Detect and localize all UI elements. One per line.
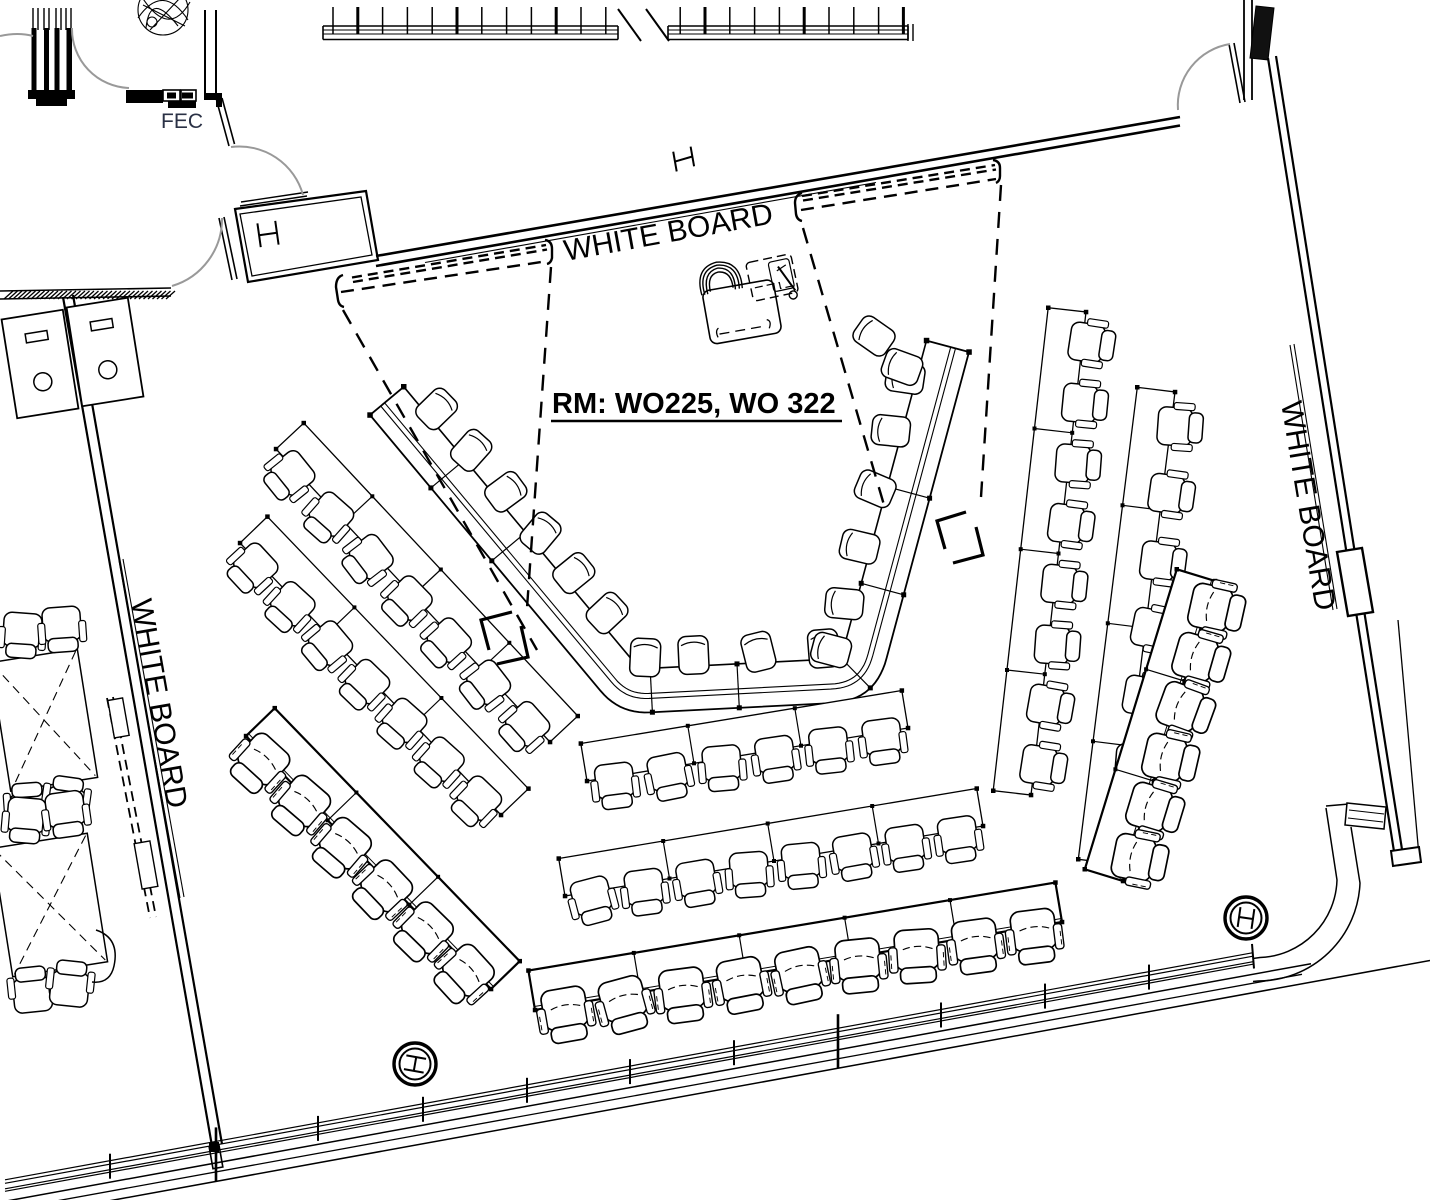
svg-text:RM: WO225, WO 322: RM: WO225, WO 322: [552, 388, 836, 420]
svg-text:FEC: FEC: [161, 110, 203, 133]
